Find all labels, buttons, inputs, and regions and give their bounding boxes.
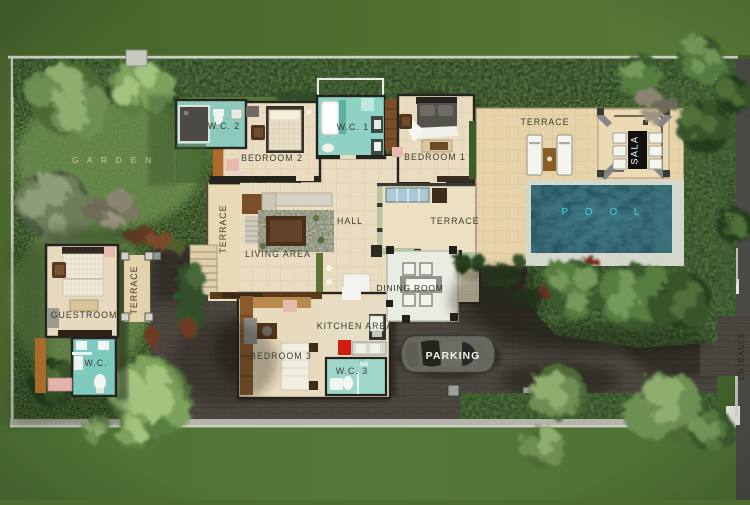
svg-text:TERRACE: TERRACE <box>218 204 228 253</box>
svg-text:TERRACE: TERRACE <box>129 265 139 314</box>
svg-text:G A R D E N: G A R D E N <box>72 155 154 165</box>
svg-text:ENTRANCE: ENTRANCE <box>737 332 746 380</box>
svg-text:DINING ROOM: DINING ROOM <box>376 283 443 293</box>
svg-text:HALL: HALL <box>337 216 363 226</box>
svg-text:GARDEN: GARDEN <box>726 178 736 222</box>
svg-text:W.C.: W.C. <box>84 358 107 368</box>
svg-text:BEDROOM 3: BEDROOM 3 <box>250 351 312 361</box>
svg-text:W.C. 1: W.C. 1 <box>337 122 369 132</box>
svg-text:KITCHEN AREA: KITCHEN AREA <box>317 321 394 331</box>
svg-text:W.C. 3: W.C. 3 <box>336 366 368 376</box>
svg-text:BEDROOM 1: BEDROOM 1 <box>404 152 466 162</box>
svg-text:LIVING AREA: LIVING AREA <box>245 249 311 259</box>
svg-text:TERRACE: TERRACE <box>430 216 479 226</box>
svg-text:TERRACE: TERRACE <box>520 117 569 127</box>
svg-text:W.C. 2: W.C. 2 <box>208 121 240 131</box>
svg-text:BEDROOM 2: BEDROOM 2 <box>241 153 303 163</box>
svg-text:GUESTROOM: GUESTROOM <box>51 310 118 320</box>
